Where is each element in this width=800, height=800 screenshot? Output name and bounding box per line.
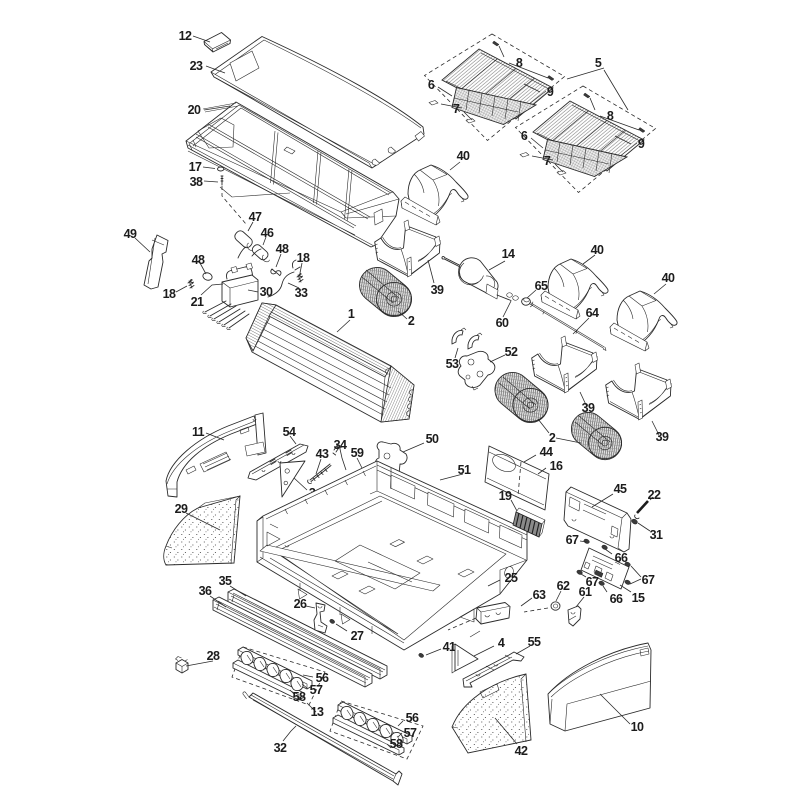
svg-text:11: 11 bbox=[192, 425, 205, 439]
svg-text:8: 8 bbox=[607, 109, 614, 123]
svg-text:40: 40 bbox=[662, 271, 675, 285]
svg-text:30: 30 bbox=[260, 285, 273, 299]
svg-text:62: 62 bbox=[557, 579, 570, 593]
svg-text:10: 10 bbox=[631, 720, 644, 734]
svg-text:58: 58 bbox=[390, 737, 403, 751]
svg-text:2: 2 bbox=[408, 314, 415, 328]
svg-text:28: 28 bbox=[207, 649, 220, 663]
svg-text:52: 52 bbox=[505, 345, 518, 359]
svg-text:58: 58 bbox=[293, 690, 306, 704]
svg-text:46: 46 bbox=[261, 226, 274, 240]
svg-text:33: 33 bbox=[295, 286, 308, 300]
svg-text:66: 66 bbox=[615, 551, 628, 565]
svg-text:51: 51 bbox=[458, 463, 471, 477]
svg-text:67: 67 bbox=[642, 573, 655, 587]
svg-text:13: 13 bbox=[311, 705, 324, 719]
svg-text:1: 1 bbox=[348, 307, 355, 321]
svg-text:18: 18 bbox=[163, 287, 176, 301]
svg-text:31: 31 bbox=[650, 528, 663, 542]
svg-text:56: 56 bbox=[406, 711, 419, 725]
svg-text:6: 6 bbox=[521, 129, 528, 143]
svg-text:61: 61 bbox=[579, 585, 592, 599]
svg-text:50: 50 bbox=[426, 432, 439, 446]
svg-text:12: 12 bbox=[179, 29, 192, 43]
svg-text:9: 9 bbox=[547, 85, 554, 99]
svg-text:18: 18 bbox=[297, 251, 310, 265]
svg-text:23: 23 bbox=[190, 59, 203, 73]
svg-text:29: 29 bbox=[175, 502, 188, 516]
svg-text:66: 66 bbox=[610, 592, 623, 606]
svg-text:48: 48 bbox=[276, 242, 289, 256]
svg-text:26: 26 bbox=[294, 597, 307, 611]
svg-text:7: 7 bbox=[453, 102, 460, 116]
svg-text:44: 44 bbox=[540, 445, 553, 459]
svg-text:55: 55 bbox=[528, 635, 541, 649]
svg-text:47: 47 bbox=[249, 210, 262, 224]
svg-text:2: 2 bbox=[549, 431, 556, 445]
svg-text:21: 21 bbox=[191, 295, 204, 309]
svg-text:34: 34 bbox=[334, 438, 347, 452]
svg-text:64: 64 bbox=[586, 306, 599, 320]
svg-text:41: 41 bbox=[443, 640, 456, 654]
svg-text:9: 9 bbox=[638, 137, 645, 151]
svg-text:67: 67 bbox=[566, 533, 579, 547]
svg-text:25: 25 bbox=[505, 571, 518, 585]
svg-text:39: 39 bbox=[431, 283, 444, 297]
svg-text:16: 16 bbox=[550, 459, 563, 473]
svg-text:57: 57 bbox=[404, 726, 417, 740]
svg-text:49: 49 bbox=[124, 227, 137, 241]
svg-text:65: 65 bbox=[535, 279, 548, 293]
svg-text:32: 32 bbox=[274, 741, 287, 755]
svg-text:59: 59 bbox=[351, 446, 364, 460]
svg-text:42: 42 bbox=[515, 744, 528, 758]
svg-text:54: 54 bbox=[283, 425, 296, 439]
svg-text:36: 36 bbox=[199, 584, 212, 598]
svg-text:8: 8 bbox=[516, 56, 523, 70]
svg-text:22: 22 bbox=[648, 488, 661, 502]
svg-text:43: 43 bbox=[316, 447, 329, 461]
svg-text:17: 17 bbox=[189, 160, 202, 174]
svg-text:48: 48 bbox=[192, 253, 205, 267]
svg-text:39: 39 bbox=[656, 430, 669, 444]
svg-text:4: 4 bbox=[498, 636, 505, 650]
svg-text:5: 5 bbox=[595, 56, 602, 70]
svg-text:63: 63 bbox=[533, 588, 546, 602]
svg-text:15: 15 bbox=[632, 591, 645, 605]
svg-text:20: 20 bbox=[188, 103, 201, 117]
svg-text:6: 6 bbox=[428, 78, 435, 92]
svg-text:60: 60 bbox=[496, 316, 509, 330]
svg-text:38: 38 bbox=[190, 175, 203, 189]
svg-text:27: 27 bbox=[351, 629, 364, 643]
svg-text:53: 53 bbox=[446, 357, 459, 371]
svg-text:57: 57 bbox=[310, 683, 323, 697]
svg-text:45: 45 bbox=[614, 482, 627, 496]
svg-text:40: 40 bbox=[457, 149, 470, 163]
svg-text:7: 7 bbox=[544, 154, 551, 168]
svg-text:19: 19 bbox=[499, 489, 512, 503]
svg-text:14: 14 bbox=[502, 247, 515, 261]
svg-text:40: 40 bbox=[591, 243, 604, 257]
svg-text:35: 35 bbox=[219, 574, 232, 588]
